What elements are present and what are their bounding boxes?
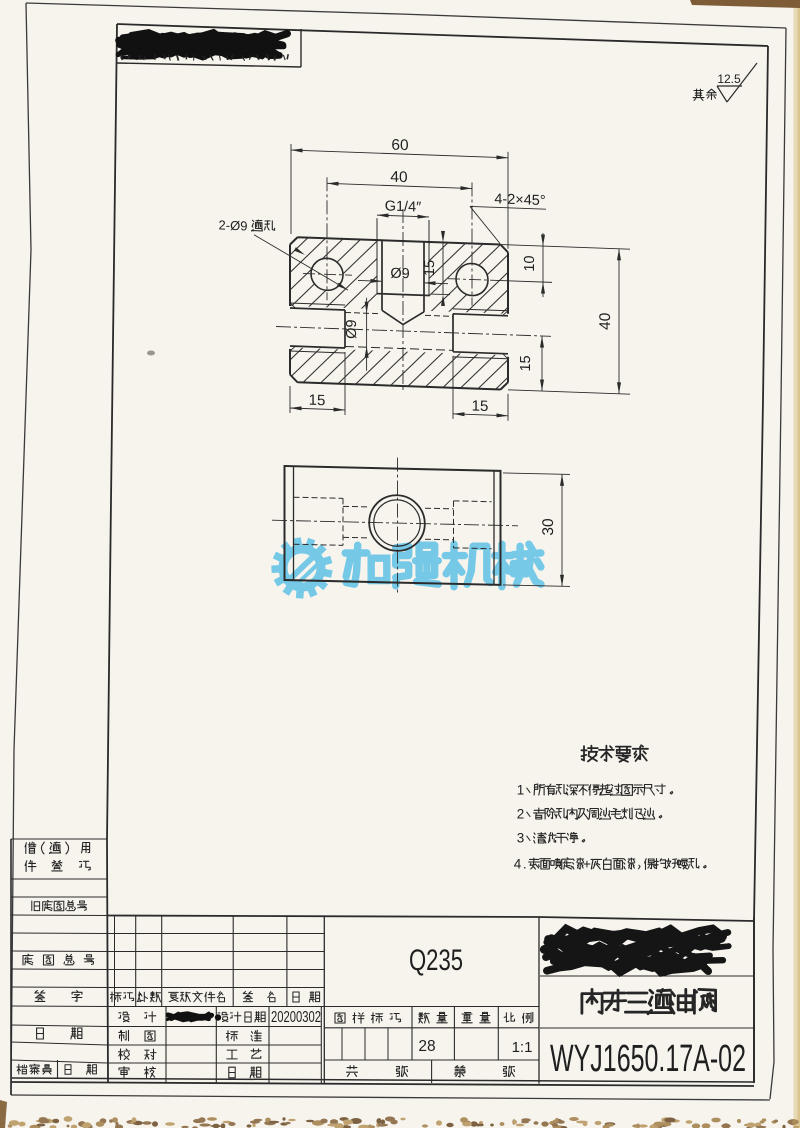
- svg-text:15: 15: [518, 355, 534, 372]
- svg-text:Q235: Q235: [409, 944, 463, 977]
- svg-text:3: 3: [517, 831, 525, 846]
- svg-text:40: 40: [597, 312, 614, 330]
- svg-text:60: 60: [391, 137, 409, 155]
- svg-text:2-Ø9: 2-Ø9: [219, 217, 248, 233]
- svg-text:20200302: 20200302: [271, 1009, 321, 1026]
- svg-text:15: 15: [309, 392, 326, 410]
- svg-text:12.5: 12.5: [717, 72, 741, 86]
- svg-text:.: .: [523, 857, 527, 872]
- svg-text:15: 15: [472, 398, 489, 416]
- svg-text:2: 2: [517, 807, 525, 822]
- svg-text:28: 28: [418, 1038, 435, 1055]
- svg-text:G1/4″: G1/4″: [385, 198, 422, 215]
- svg-text:4-2×45°: 4-2×45°: [494, 191, 545, 209]
- svg-text:Ø9: Ø9: [390, 266, 409, 283]
- svg-text:Ø9: Ø9: [344, 319, 360, 339]
- svg-text:4: 4: [514, 857, 522, 872]
- svg-text:15: 15: [422, 260, 438, 277]
- svg-text:40: 40: [390, 169, 408, 187]
- svg-text:10: 10: [522, 255, 538, 272]
- svg-text:1:1: 1:1: [512, 1039, 533, 1056]
- svg-text:30: 30: [540, 518, 557, 536]
- svg-text:1: 1: [517, 783, 525, 798]
- svg-text:+: +: [583, 857, 591, 872]
- svg-text:WYJ1650.17A-02: WYJ1650.17A-02: [550, 1038, 746, 1080]
